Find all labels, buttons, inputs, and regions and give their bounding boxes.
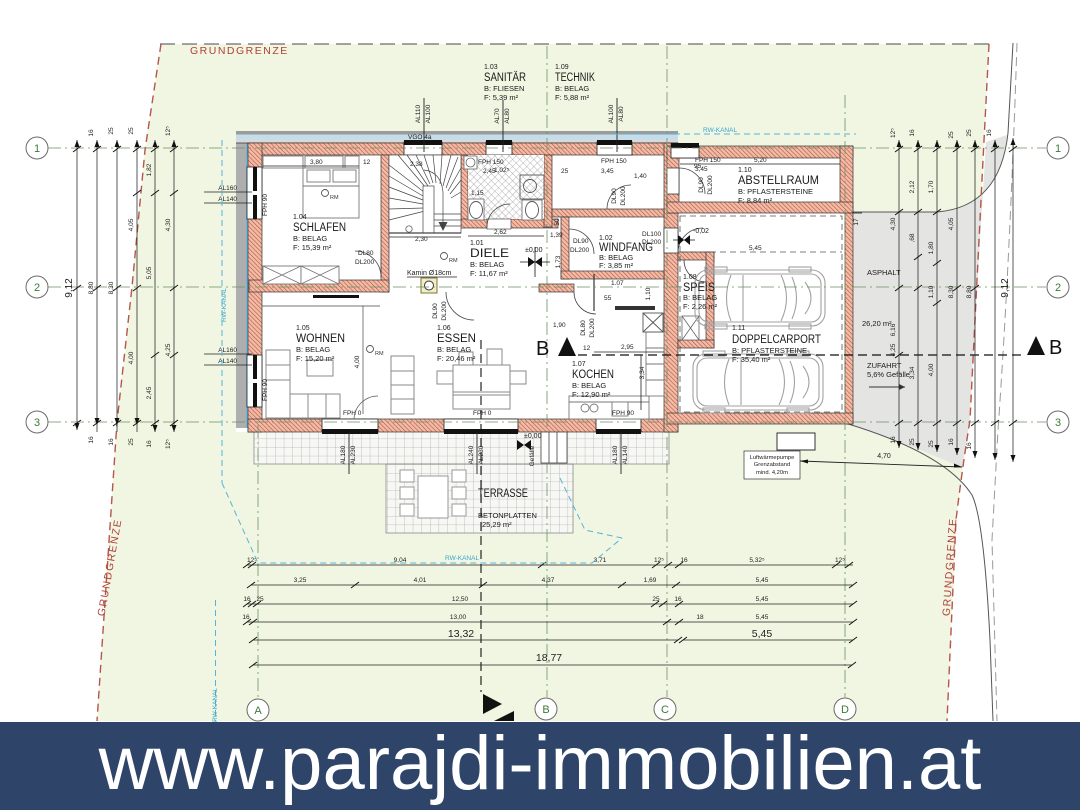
svg-text:3,45: 3,45 [601,168,614,175]
svg-text:F: 11,67 m²: F: 11,67 m² [470,269,508,278]
svg-text:5,05: 5,05 [146,266,153,279]
svg-text:AL80: AL80 [504,108,511,124]
svg-text:AL140: AL140 [622,445,629,464]
svg-text:DL90: DL90 [611,188,618,204]
svg-text:4,30: 4,30 [165,218,172,231]
svg-text:4,05: 4,05 [948,217,955,230]
svg-text:1,02⁵: 1,02⁵ [494,167,510,174]
svg-text:25: 25 [128,127,135,135]
svg-text:25: 25 [966,129,973,137]
svg-text:4,00: 4,00 [354,355,361,368]
svg-text:1.03: 1.03 [484,64,498,71]
svg-text:1.04: 1.04 [293,214,307,221]
svg-text:DL200: DL200 [642,239,662,246]
svg-text:16: 16 [88,129,95,137]
svg-text:26,20 m²: 26,20 m² [862,319,892,328]
svg-text:50: 50 [554,218,561,226]
svg-text:FPH 0: FPH 0 [343,410,362,417]
svg-text:8,30: 8,30 [108,281,115,294]
svg-text:F: 3,85 m²: F: 3,85 m² [599,261,634,270]
svg-text:1.01: 1.01 [470,240,484,247]
svg-text:AL110: AL110 [415,104,422,123]
svg-text:25: 25 [561,168,569,175]
svg-text:12⁵: 12⁵ [165,439,172,449]
svg-text:25: 25 [128,438,135,446]
svg-text:1: 1 [34,143,40,155]
svg-text:DL200: DL200 [620,186,627,206]
svg-text:16: 16 [948,438,955,446]
svg-text:Luftwärmepumpe: Luftwärmepumpe [750,455,795,461]
svg-text:BETONPLATTEN: BETONPLATTEN [478,511,537,520]
svg-text:9,12: 9,12 [64,278,75,298]
svg-text:9,12: 9,12 [1000,278,1011,298]
svg-text:5,45: 5,45 [749,245,762,252]
svg-text:2: 2 [34,282,40,294]
svg-text:RW-KANAL: RW-KANAL [703,127,737,134]
svg-text:B: BELAG: B: BELAG [470,260,504,269]
svg-text:12⁵: 12⁵ [654,557,664,564]
svg-text:±0,00: ±0,00 [524,433,542,440]
svg-text:1,10: 1,10 [645,287,652,300]
svg-text:F: 15,20 m²: F: 15,20 m² [296,354,335,363]
svg-text:3,34: 3,34 [909,366,916,379]
svg-text:1: 1 [1055,143,1061,155]
svg-text:16: 16 [890,436,897,444]
svg-text:16: 16 [674,596,682,603]
svg-text:17: 17 [853,218,860,226]
svg-text:4,30: 4,30 [890,217,897,230]
svg-text:KOCHEN: KOCHEN [572,369,614,381]
svg-text:Grenzabstand: Grenzabstand [754,462,790,468]
svg-text:AL230: AL230 [350,445,357,464]
svg-text:RM: RM [375,351,384,357]
svg-text:ABSTELLRAUM: ABSTELLRAUM [738,175,819,187]
svg-text:DL80: DL80 [580,320,587,336]
svg-text:ASPHALT: ASPHALT [867,268,901,277]
svg-text:16: 16 [146,440,153,448]
svg-text:AL140: AL140 [218,358,237,365]
svg-text:2,95: 2,95 [621,344,634,351]
svg-text:2,12: 2,12 [909,180,916,193]
svg-text:3,34: 3,34 [639,366,646,379]
svg-text:F: 5,39 m²: F: 5,39 m² [484,93,519,102]
svg-text:6,16: 6,16 [890,323,897,336]
svg-text:SANITÄR: SANITÄR [484,72,526,84]
svg-text:12⁵: 12⁵ [890,128,897,138]
svg-text:12: 12 [583,345,591,352]
svg-text:AL100: AL100 [425,104,432,123]
svg-text:FPH 90: FPH 90 [262,194,269,216]
svg-text:mind. 4,20m: mind. 4,20m [756,470,788,476]
svg-text:16: 16 [680,557,688,564]
svg-text:ESSEN: ESSEN [437,333,476,345]
svg-text:55: 55 [604,295,612,302]
svg-text:5,45: 5,45 [756,614,769,621]
svg-text:DL200: DL200 [441,301,448,321]
svg-text:4,00: 4,00 [128,351,135,364]
svg-text:F: 12,90 m²: F: 12,90 m² [572,390,611,399]
svg-text:1,82: 1,82 [146,163,153,176]
svg-text:16: 16 [966,442,973,450]
svg-text:AL240: AL240 [468,445,475,464]
svg-text:2,62: 2,62 [494,229,507,236]
svg-text:DL100: DL100 [642,231,662,238]
svg-text:AL80: AL80 [618,106,625,122]
svg-text:1,90: 1,90 [553,322,566,329]
svg-text:F: 8,84 m²: F: 8,84 m² [738,196,773,205]
svg-text:AL180: AL180 [340,445,347,464]
svg-text:1,15: 1,15 [471,190,484,197]
svg-text:2: 2 [1055,282,1061,294]
svg-text:AL100: AL100 [608,104,615,123]
svg-text:12: 12 [363,159,371,166]
svg-text:B: B [542,704,549,716]
svg-text:B: FLIESEN: B: FLIESEN [484,84,524,93]
svg-text:2,38: 2,38 [410,161,423,168]
svg-text:RM: RM [449,258,458,264]
svg-text:DL200: DL200 [589,318,596,338]
svg-text:B: BELAG: B: BELAG [683,293,717,302]
svg-text:18,77: 18,77 [536,652,562,664]
svg-text:AL230: AL230 [478,445,485,464]
svg-text:SCHLAFEN: SCHLAFEN [293,222,346,234]
svg-text:A: A [254,705,262,717]
svg-text:RM: RM [330,195,339,201]
svg-text:1.05: 1.05 [296,325,310,332]
svg-text:1.10: 1.10 [738,167,752,174]
svg-text:B: B [536,338,549,360]
svg-text:FPH 90: FPH 90 [612,410,634,417]
svg-text:Kamin Ø18cm: Kamin Ø18cm [407,270,452,277]
svg-text:1,70: 1,70 [928,180,935,193]
svg-text:1,73: 1,73 [555,255,562,268]
svg-text:VGO 4a: VGO 4a [408,134,432,141]
svg-text:1,69: 1,69 [644,577,657,584]
svg-text:B: BELAG: B: BELAG [296,345,330,354]
svg-text:B: PFLASTERSTEINE: B: PFLASTERSTEINE [732,346,807,355]
svg-text:1,80: 1,80 [928,241,935,254]
svg-text:13,32: 13,32 [448,628,474,640]
svg-text:4,05: 4,05 [128,218,135,231]
svg-text:DL80: DL80 [358,250,374,257]
svg-text:FPH 150: FPH 150 [601,158,627,165]
svg-text:8,30: 8,30 [948,285,955,298]
svg-text:4,25: 4,25 [165,343,172,356]
svg-text:3,80: 3,80 [310,159,323,166]
svg-text:FPH 0: FPH 0 [473,410,492,417]
svg-text:,68: ,68 [909,233,916,242]
svg-text:1.02: 1.02 [599,235,613,242]
svg-text:1.08: 1.08 [683,274,697,281]
svg-text:F: 20,46 m²: F: 20,46 m² [437,354,476,363]
svg-text:3,25: 3,25 [294,577,307,584]
svg-text:5,6% Gefälle: 5,6% Gefälle [867,370,910,379]
svg-text:AL180: AL180 [612,445,619,464]
svg-text:5,45: 5,45 [752,628,773,640]
svg-text:GRUNDGRENZE: GRUNDGRENZE [190,45,289,57]
svg-text:16: 16 [243,596,251,603]
svg-text:DL200: DL200 [570,247,590,254]
svg-text:2,45: 2,45 [146,386,153,399]
svg-text:16: 16 [242,614,250,621]
svg-text:5,45: 5,45 [756,596,769,603]
svg-text:AL160: AL160 [218,185,237,192]
svg-text:DL200: DL200 [707,175,714,195]
svg-text:DL90: DL90 [573,238,589,245]
svg-text:3,71: 3,71 [594,557,607,564]
svg-text:1,10: 1,10 [928,285,935,298]
svg-text:B: BELAG: B: BELAG [555,84,589,93]
svg-text:B: BELAG: B: BELAG [437,345,471,354]
svg-text:25: 25 [256,596,264,603]
svg-text:F: 35,40 m²: F: 35,40 m² [732,355,771,364]
svg-text:5,45: 5,45 [756,577,769,584]
svg-text:F: 5,88 m²: F: 5,88 m² [555,93,590,102]
svg-text:B: PFLASTERSTEINE: B: PFLASTERSTEINE [738,187,813,196]
svg-text:4,37: 4,37 [542,577,555,584]
svg-text:www.parajdi-immobilien.at: www.parajdi-immobilien.at [98,721,982,806]
svg-text:AL70: AL70 [494,108,501,124]
svg-text:25: 25 [652,596,660,603]
svg-text:DL200: DL200 [355,259,375,266]
svg-text:±0,00: ±0,00 [525,247,543,254]
svg-text:B: BELAG: B: BELAG [293,234,327,243]
svg-text:DL90: DL90 [432,303,439,319]
svg-text:25: 25 [909,438,916,446]
svg-text:8,80: 8,80 [88,281,95,294]
svg-text:4,70: 4,70 [877,453,891,460]
svg-text:25: 25 [108,127,115,135]
svg-text:16: 16 [88,436,95,444]
svg-text:F: 15,39 m²: F: 15,39 m² [293,243,332,252]
svg-text:12,50: 12,50 [452,596,469,603]
svg-text:1,39: 1,39 [550,232,563,239]
svg-text:3: 3 [34,417,40,429]
svg-text:4,00: 4,00 [928,363,935,376]
svg-text:ZUFAHRT: ZUFAHRT [867,361,902,370]
svg-text:13,00: 13,00 [450,614,467,621]
svg-text:B: B [1049,337,1062,359]
svg-text:25: 25 [948,131,955,139]
svg-text:F: 2,26 m²: F: 2,26 m² [683,302,718,311]
svg-text:12⁵: 12⁵ [835,557,845,564]
svg-text:TERRASSE: TERRASSE [478,488,528,500]
svg-text:RW-KANAL: RW-KANAL [445,555,479,562]
svg-text:D: D [841,704,849,716]
svg-text:FPH 150: FPH 150 [478,159,504,166]
svg-text:C: C [661,704,669,716]
svg-text:1,40: 1,40 [634,173,647,180]
svg-text:4,25: 4,25 [890,343,897,356]
svg-text:AL160: AL160 [218,347,237,354]
svg-text:8,80: 8,80 [966,285,973,298]
svg-text:4,01: 4,01 [414,577,427,584]
svg-text:DIELE: DIELE [470,248,509,260]
svg-text:1.06: 1.06 [437,325,451,332]
svg-text:25: 25 [928,440,935,448]
svg-text:RW-KANAL: RW-KANAL [212,688,219,722]
svg-text:16: 16 [108,438,115,446]
svg-text:25,29 m²: 25,29 m² [482,520,512,529]
svg-text:TECHNIK: TECHNIK [555,72,595,84]
svg-text:1.11: 1.11 [732,325,745,332]
svg-text:16: 16 [909,129,916,137]
svg-text:RW-KANAL: RW-KANAL [221,288,228,322]
svg-text:3: 3 [1055,417,1061,429]
svg-text:1.07: 1.07 [572,361,586,368]
svg-text:FPH 90: FPH 90 [262,379,269,401]
svg-text:DL90: DL90 [698,177,705,193]
svg-text:12⁵: 12⁵ [165,126,172,136]
svg-text:1.09: 1.09 [555,64,569,71]
svg-text:DOPPELCARPORT: DOPPELCARPORT [732,334,821,346]
svg-text:AL140: AL140 [218,196,237,203]
svg-text:1.07: 1.07 [611,280,624,287]
svg-text:18: 18 [696,614,704,621]
svg-text:5,20: 5,20 [754,157,767,164]
svg-text:5,32⁵: 5,32⁵ [749,557,765,564]
svg-text:16: 16 [986,129,993,137]
svg-text:B: BELAG: B: BELAG [572,381,606,390]
svg-text:WOHNEN: WOHNEN [296,333,345,345]
svg-text:-0,02: -0,02 [693,228,709,235]
